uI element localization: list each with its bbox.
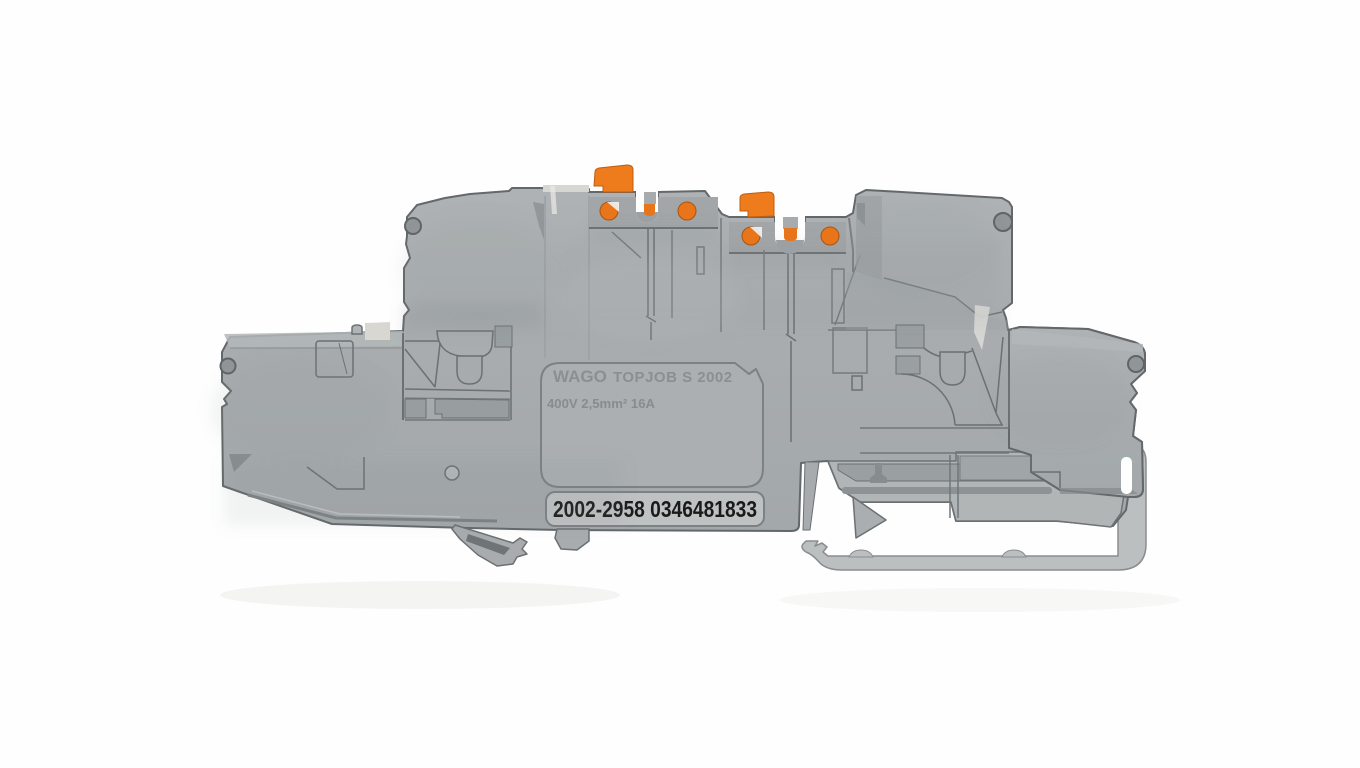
svg-text:TOPJOB S 2002: TOPJOB S 2002 — [613, 369, 733, 386]
svg-text:400V 2,5mm² 16A: 400V 2,5mm² 16A — [547, 396, 656, 411]
svg-text:WAGO: WAGO — [553, 367, 607, 386]
